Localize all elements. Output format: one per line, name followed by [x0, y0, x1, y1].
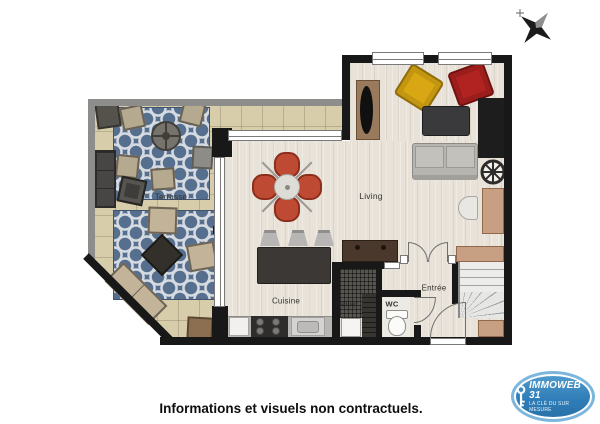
lounge-armchair-top [148, 207, 178, 235]
sofa-cushion [415, 146, 444, 168]
knob [381, 245, 386, 250]
logo-brand: IMMOWEB 31 [529, 381, 590, 401]
sink [291, 317, 325, 336]
table-center [285, 185, 290, 190]
window-pane-line [229, 136, 341, 137]
north-arrow-icon [512, 6, 560, 50]
burner [256, 318, 264, 326]
door-frame-left [400, 255, 408, 264]
window-band-left [214, 157, 225, 307]
coffee-table [422, 106, 470, 136]
wall-living-left [342, 55, 350, 140]
floorplan-canvas: Terrasse Living Cuisine Cellier WC Entré… [0, 0, 600, 424]
label-living: Living [359, 191, 382, 201]
front-door-threshold [430, 338, 466, 345]
label-terrasse: Terrasse [155, 193, 187, 202]
terrace-chair-3 [115, 154, 140, 179]
burner [256, 327, 264, 335]
corridor-threshold [384, 262, 400, 269]
disclaimer-text: Informations et visuels non contractuels… [0, 401, 582, 416]
terrace-wall-left [88, 99, 95, 259]
sink-basin [297, 321, 319, 333]
door-frame-right [448, 255, 456, 264]
knob [355, 245, 360, 250]
sofa-cushion [446, 146, 475, 168]
kitchen-island [257, 247, 331, 284]
wall-right [504, 55, 512, 345]
terrace-chair-1 [119, 104, 146, 131]
terrace-wall-top [88, 99, 342, 106]
terrace-chair-4 [150, 167, 175, 191]
window-band-top [228, 130, 342, 141]
terrace-side-table [191, 145, 213, 169]
stairs-straight [458, 262, 504, 292]
desk [482, 188, 504, 234]
window-pane-line [439, 59, 491, 60]
parasol-hub [162, 132, 170, 140]
wall-entree-stairs [452, 262, 458, 304]
terrace-dark-armchair [117, 176, 148, 207]
wall-entree-left-lower [414, 325, 421, 338]
label-cuisine: Cuisine [272, 297, 300, 306]
sofa [412, 143, 478, 180]
terrace-bench [95, 150, 116, 208]
cellier-shelf [362, 294, 376, 342]
ship-wheel-decor [479, 158, 507, 186]
window-pane-line [220, 158, 221, 306]
burner [272, 327, 280, 335]
wall-wc-top [376, 290, 421, 297]
label-entree: Entrée [422, 284, 447, 293]
sideboard-living [456, 246, 504, 262]
washing-machine [341, 318, 361, 337]
wall-cellier-wc [376, 268, 382, 345]
toilet-bowl [388, 316, 406, 336]
stove [251, 316, 288, 337]
wall-kitchen-post [212, 306, 228, 345]
window-living-1 [372, 52, 424, 65]
label-wc: WC [386, 300, 399, 309]
entry-cabinet [478, 320, 504, 337]
window-pane-line [373, 59, 423, 60]
terrace-round-table [151, 121, 181, 151]
kitchen-cabinet [229, 317, 249, 336]
media-unit [478, 98, 504, 158]
tv-screen [360, 86, 373, 134]
window-living-2 [438, 52, 492, 65]
desk-chair [458, 196, 478, 220]
label-cellier: Cellier [336, 300, 359, 309]
console-dark [342, 240, 398, 262]
dining-table [274, 174, 300, 200]
burner [272, 318, 280, 326]
